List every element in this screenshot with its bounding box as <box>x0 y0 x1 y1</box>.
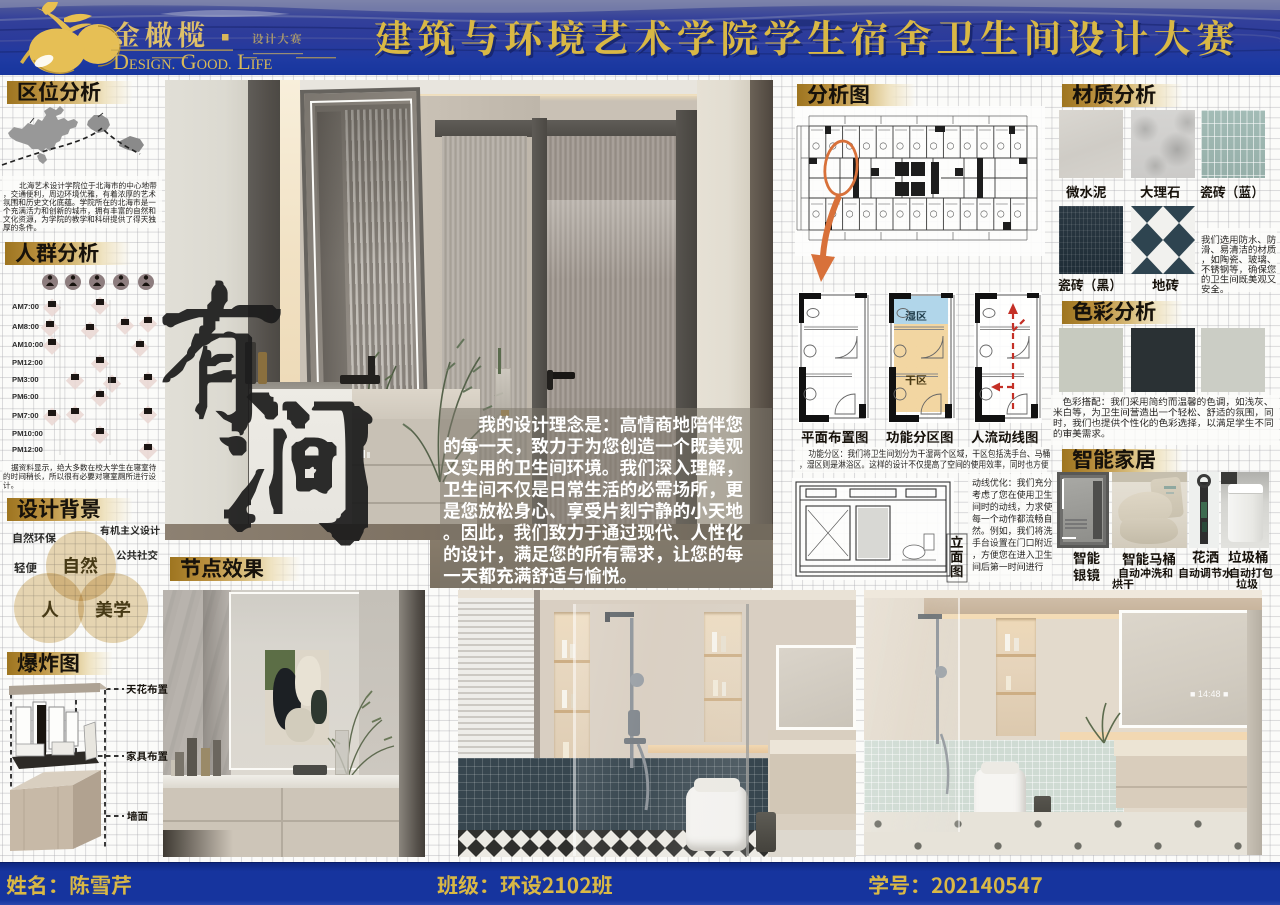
svg-text:DESIGN. GOOD. LIFE: DESIGN. GOOD. LIFE <box>113 49 273 74</box>
svg-text:■ 14:48 ■: ■ 14:48 ■ <box>1190 689 1228 699</box>
